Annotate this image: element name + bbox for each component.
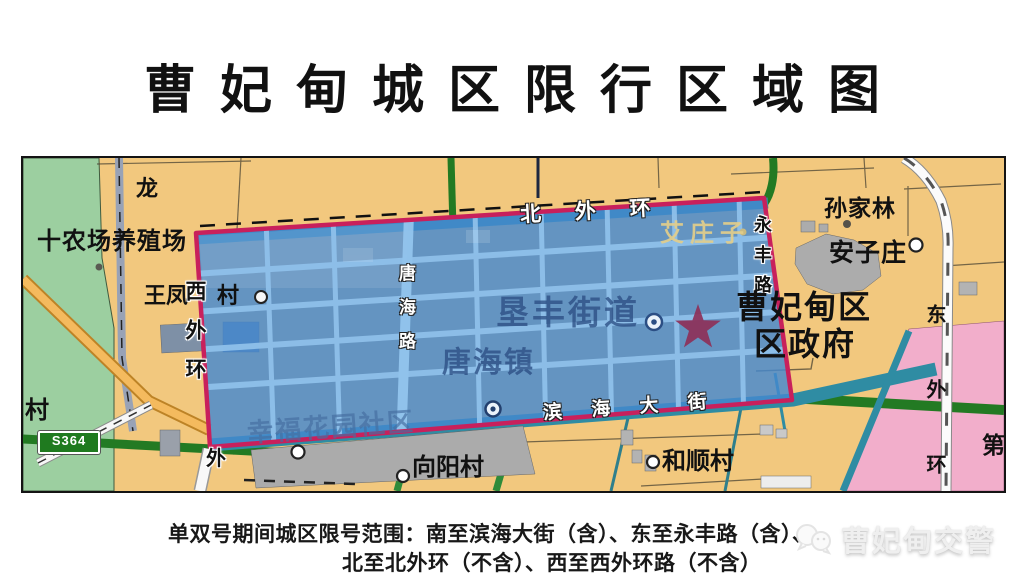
binhai-bullseye-marker	[486, 402, 501, 417]
label-anzizhuang: 安子庄	[829, 241, 907, 266]
page-title: 曹妃甸城区限行区域图	[0, 48, 1024, 123]
label-district-government: 区政府	[754, 328, 856, 360]
heshuncun-circle-marker	[647, 456, 659, 468]
label-xiwaihuan-road: 西外环	[184, 280, 205, 397]
label-tanghai-road: 唐海路	[397, 264, 414, 366]
caption-line-2: 北至北外环（不含）、西至西外环路（不含）	[342, 547, 762, 577]
wechat-icon	[793, 521, 835, 557]
restriction-map: 龙 十农场养殖场 王凤 村 西外环 外 北 外 环 艾庄子 永丰路 孙家林 安子…	[21, 156, 1006, 493]
label-di: 第	[982, 434, 1005, 457]
sunjialin-dot-marker	[843, 220, 851, 228]
label-cun-left: 村	[25, 399, 49, 423]
label-wangfeng-cun: 村	[217, 285, 239, 307]
label-aizhuangzi: 艾庄子	[660, 222, 750, 246]
label-long: 龙	[136, 178, 158, 200]
s364-road-badge: S364	[38, 431, 100, 454]
kenfeng-bullseye-marker	[646, 314, 662, 330]
anzizhuang-circle-marker	[910, 239, 923, 252]
page: 曹妃甸城区限行区域图	[0, 0, 1024, 582]
label-tanghai-town: 唐海镇	[442, 349, 535, 378]
wangfengcun-circle-marker	[255, 291, 267, 303]
label-dongwaihuan-road: 东外环	[924, 304, 944, 493]
xingfu-circle-marker	[292, 446, 305, 459]
label-shinongchang: 十农场养殖场	[37, 230, 187, 254]
label-wai-south: 外	[206, 449, 226, 469]
label-wangfeng: 王凤	[144, 285, 188, 307]
label-sunjialin: 孙家林	[824, 197, 896, 220]
label-heshun-village: 和顺村	[662, 450, 734, 474]
label-kenfeng-subdistrict: 垦丰街道	[496, 296, 640, 329]
watermark: 曹妃甸交警	[793, 518, 996, 560]
watermark-text: 曹妃甸交警	[841, 518, 996, 560]
xiangyangcun-circle-marker	[397, 470, 409, 482]
shinongchang-dot-marker	[96, 264, 103, 271]
caption-line-1: 单双号期间城区限号范围：南至滨海大街（含）、东至永丰路（含）、	[168, 518, 814, 548]
label-district-name: 曹妃甸区	[736, 291, 872, 323]
label-xiangyang-village: 向阳村	[412, 456, 484, 480]
